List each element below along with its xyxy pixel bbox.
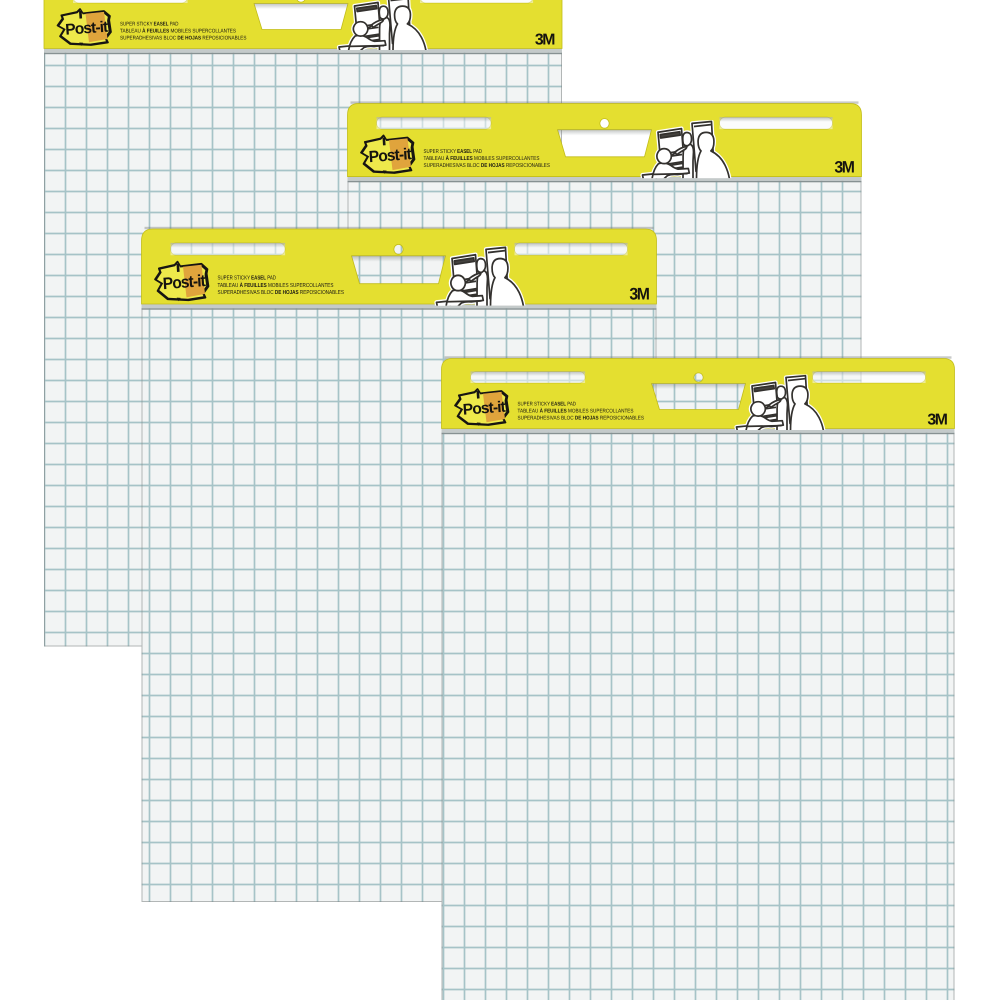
svg-text:SUPER STICKY EASEL PAD: SUPER STICKY EASEL PAD	[120, 22, 179, 28]
svg-text:SUPERADHESIVAS BLOC DE HOJAS R: SUPERADHESIVAS BLOC DE HOJAS REPOSICIONA…	[424, 163, 551, 169]
svg-text:Post-it: Post-it	[462, 399, 506, 419]
svg-text:TABLEAU À FEUILLES MOBILES SUP: TABLEAU À FEUILLES MOBILES SUPERCOLLANTE…	[518, 408, 634, 415]
svg-text:3M: 3M	[834, 159, 854, 177]
svg-text:3M: 3M	[535, 31, 555, 48]
svg-text:Post-it: Post-it	[65, 19, 109, 39]
svg-text:SUPER STICKY EASEL PAD: SUPER STICKY EASEL PAD	[518, 402, 577, 408]
svg-text:SUPER STICKY EASEL PAD: SUPER STICKY EASEL PAD	[218, 275, 277, 281]
svg-text:TABLEAU À FEUILLES MOBILES SUP: TABLEAU À FEUILLES MOBILES SUPERCOLLANTE…	[218, 281, 334, 288]
svg-text:3M: 3M	[629, 286, 649, 304]
svg-text:3M: 3M	[927, 411, 947, 428]
svg-text:SUPERADHESIVAS BLOC DE HOJAS R: SUPERADHESIVAS BLOC DE HOJAS REPOSICIONA…	[120, 35, 247, 41]
svg-text:SUPER STICKY EASEL PAD: SUPER STICKY EASEL PAD	[424, 149, 483, 155]
svg-text:TABLEAU À FEUILLES MOBILES SUP: TABLEAU À FEUILLES MOBILES SUPERCOLLANTE…	[424, 155, 540, 162]
svg-text:TABLEAU À FEUILLES MOBILES SUP: TABLEAU À FEUILLES MOBILES SUPERCOLLANTE…	[120, 28, 236, 35]
svg-text:SUPERADHESIVAS BLOC DE HOJAS R: SUPERADHESIVAS BLOC DE HOJAS REPOSICIONA…	[518, 415, 645, 421]
svg-text:SUPERADHESIVAS BLOC DE HOJAS R: SUPERADHESIVAS BLOC DE HOJAS REPOSICIONA…	[218, 290, 345, 296]
svg-text:Post-it: Post-it	[368, 146, 412, 167]
svg-text:Post-it: Post-it	[162, 272, 206, 293]
